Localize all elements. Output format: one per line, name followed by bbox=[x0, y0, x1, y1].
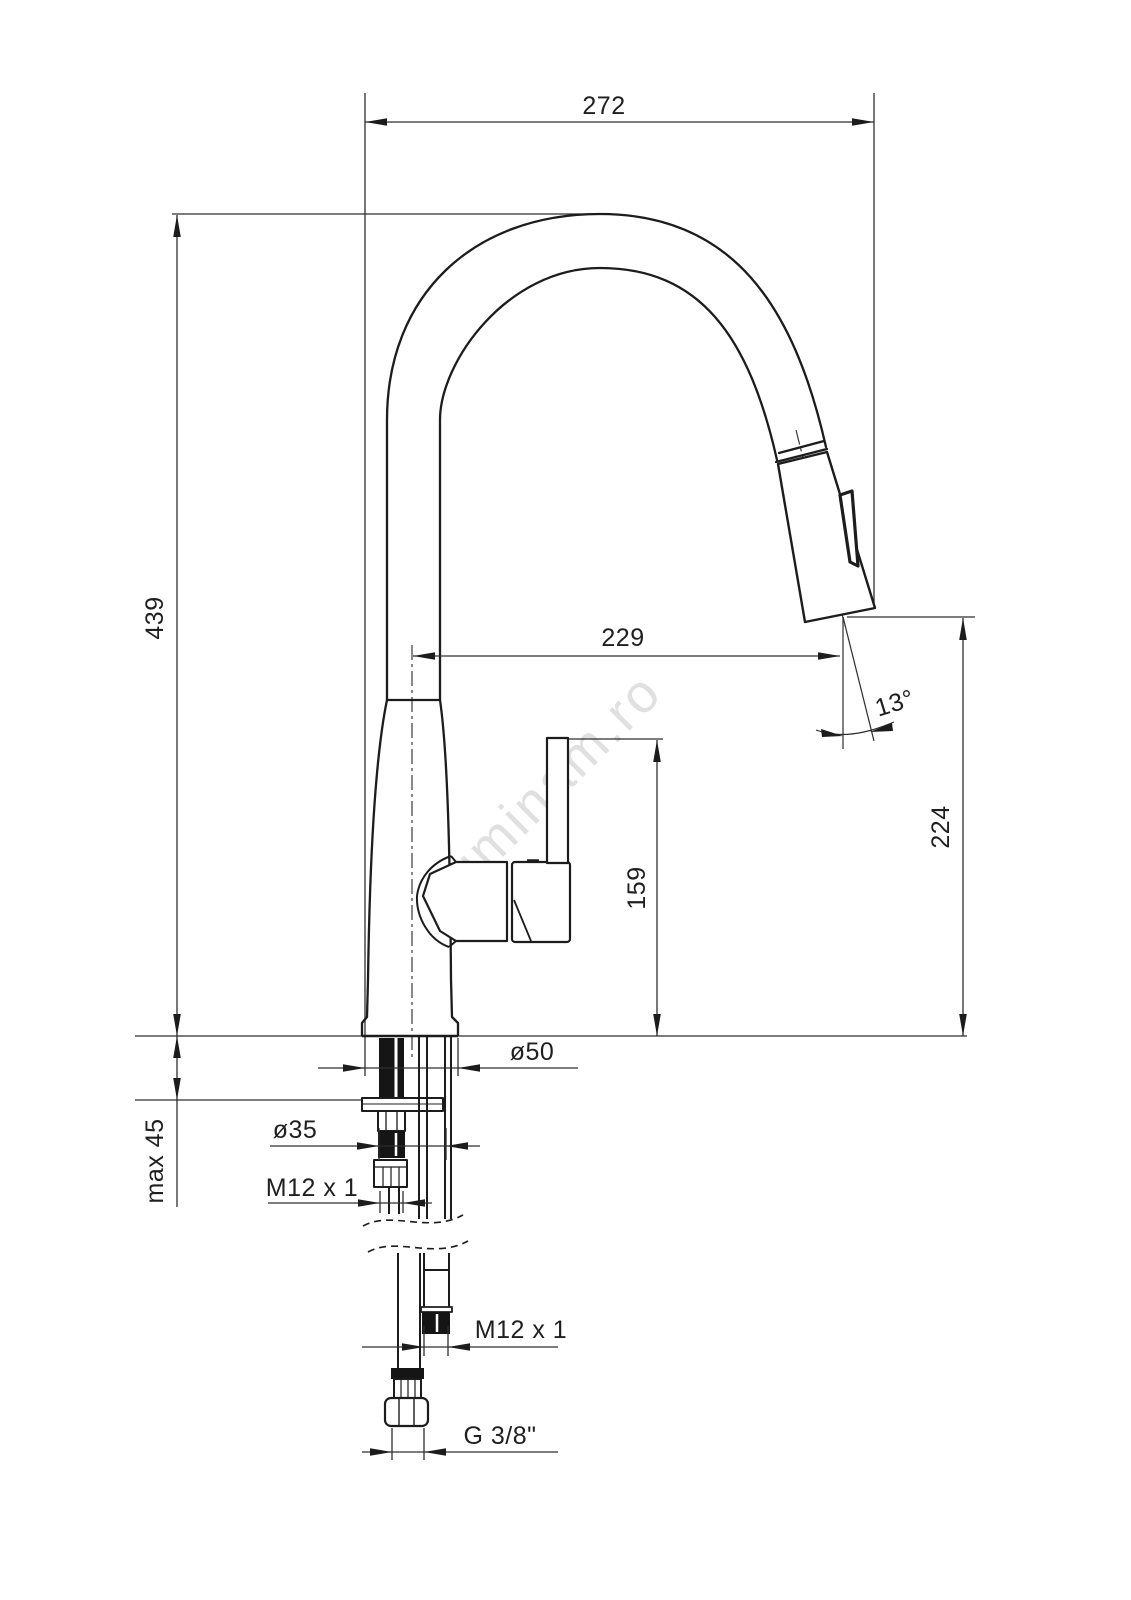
body-left-edge bbox=[362, 700, 387, 1036]
dimension-label-159: 159 bbox=[623, 866, 651, 909]
arrow bbox=[343, 1064, 365, 1072]
dimension-spout-reach bbox=[413, 652, 840, 660]
spray-head bbox=[778, 452, 875, 622]
arrow bbox=[424, 1448, 446, 1456]
dimension-spray-angle bbox=[816, 617, 894, 749]
technical-drawing-page: luminam.ro bbox=[0, 0, 1131, 1600]
arrow bbox=[818, 652, 840, 660]
arrow bbox=[370, 1448, 392, 1456]
dimension-label-224: 224 bbox=[927, 805, 955, 848]
arrow bbox=[458, 1064, 480, 1072]
threaded-stud-lower bbox=[378, 1131, 405, 1158]
dimension-label-m12-upper: M12 x 1 bbox=[266, 1174, 358, 1202]
arrow bbox=[446, 1142, 468, 1150]
dimension-handle-height bbox=[653, 740, 661, 1036]
hex-nut bbox=[378, 1111, 405, 1131]
arrow bbox=[413, 652, 435, 660]
arrow bbox=[870, 723, 893, 732]
dimension-overall-height bbox=[173, 215, 181, 1207]
arrow bbox=[821, 729, 843, 737]
dimension-outlet-height bbox=[959, 618, 967, 1036]
dimension-label-dia35: ø35 bbox=[273, 1116, 318, 1144]
dimension-label-439: 439 bbox=[141, 596, 169, 639]
supply-connection-nut bbox=[385, 1398, 428, 1426]
break-line-upper bbox=[363, 1215, 463, 1226]
arrow bbox=[173, 1036, 181, 1058]
arrow bbox=[357, 1142, 379, 1150]
dimension-label-g38: G 3/8" bbox=[463, 1422, 536, 1450]
arrow bbox=[173, 215, 181, 237]
handle-lever bbox=[547, 738, 568, 863]
faucet-dimension-drawing: luminam.ro bbox=[0, 0, 1131, 1600]
arrow bbox=[448, 1343, 470, 1351]
arrow bbox=[653, 1014, 661, 1036]
hose-ferrule bbox=[391, 1368, 424, 1379]
handle-base bbox=[512, 862, 570, 942]
hose-stub-flange bbox=[421, 1307, 452, 1312]
arrow bbox=[403, 1199, 425, 1207]
arrow bbox=[653, 740, 661, 762]
dimension-label-229: 229 bbox=[601, 624, 644, 652]
supply-hoses bbox=[363, 1036, 468, 1426]
mounting-hardware bbox=[362, 1038, 443, 1214]
arrow bbox=[173, 1078, 181, 1100]
dimension-label-dia50: ø50 bbox=[510, 1038, 555, 1066]
dimension-label-13deg: 13° bbox=[872, 684, 918, 722]
break-line-lower bbox=[368, 1241, 468, 1252]
dimension-label-272: 272 bbox=[582, 92, 625, 120]
arrow bbox=[365, 118, 387, 126]
dimension-label-m12-lower: M12 x 1 bbox=[475, 1316, 567, 1344]
dimension-label-max45: max 45 bbox=[141, 1119, 169, 1204]
arrow bbox=[959, 618, 967, 640]
arrow bbox=[173, 1014, 181, 1036]
spray-head-body bbox=[778, 452, 875, 622]
valve-pentagon bbox=[423, 862, 507, 941]
arrow bbox=[358, 1199, 380, 1207]
arrow bbox=[852, 118, 874, 126]
arrow bbox=[959, 1014, 967, 1036]
